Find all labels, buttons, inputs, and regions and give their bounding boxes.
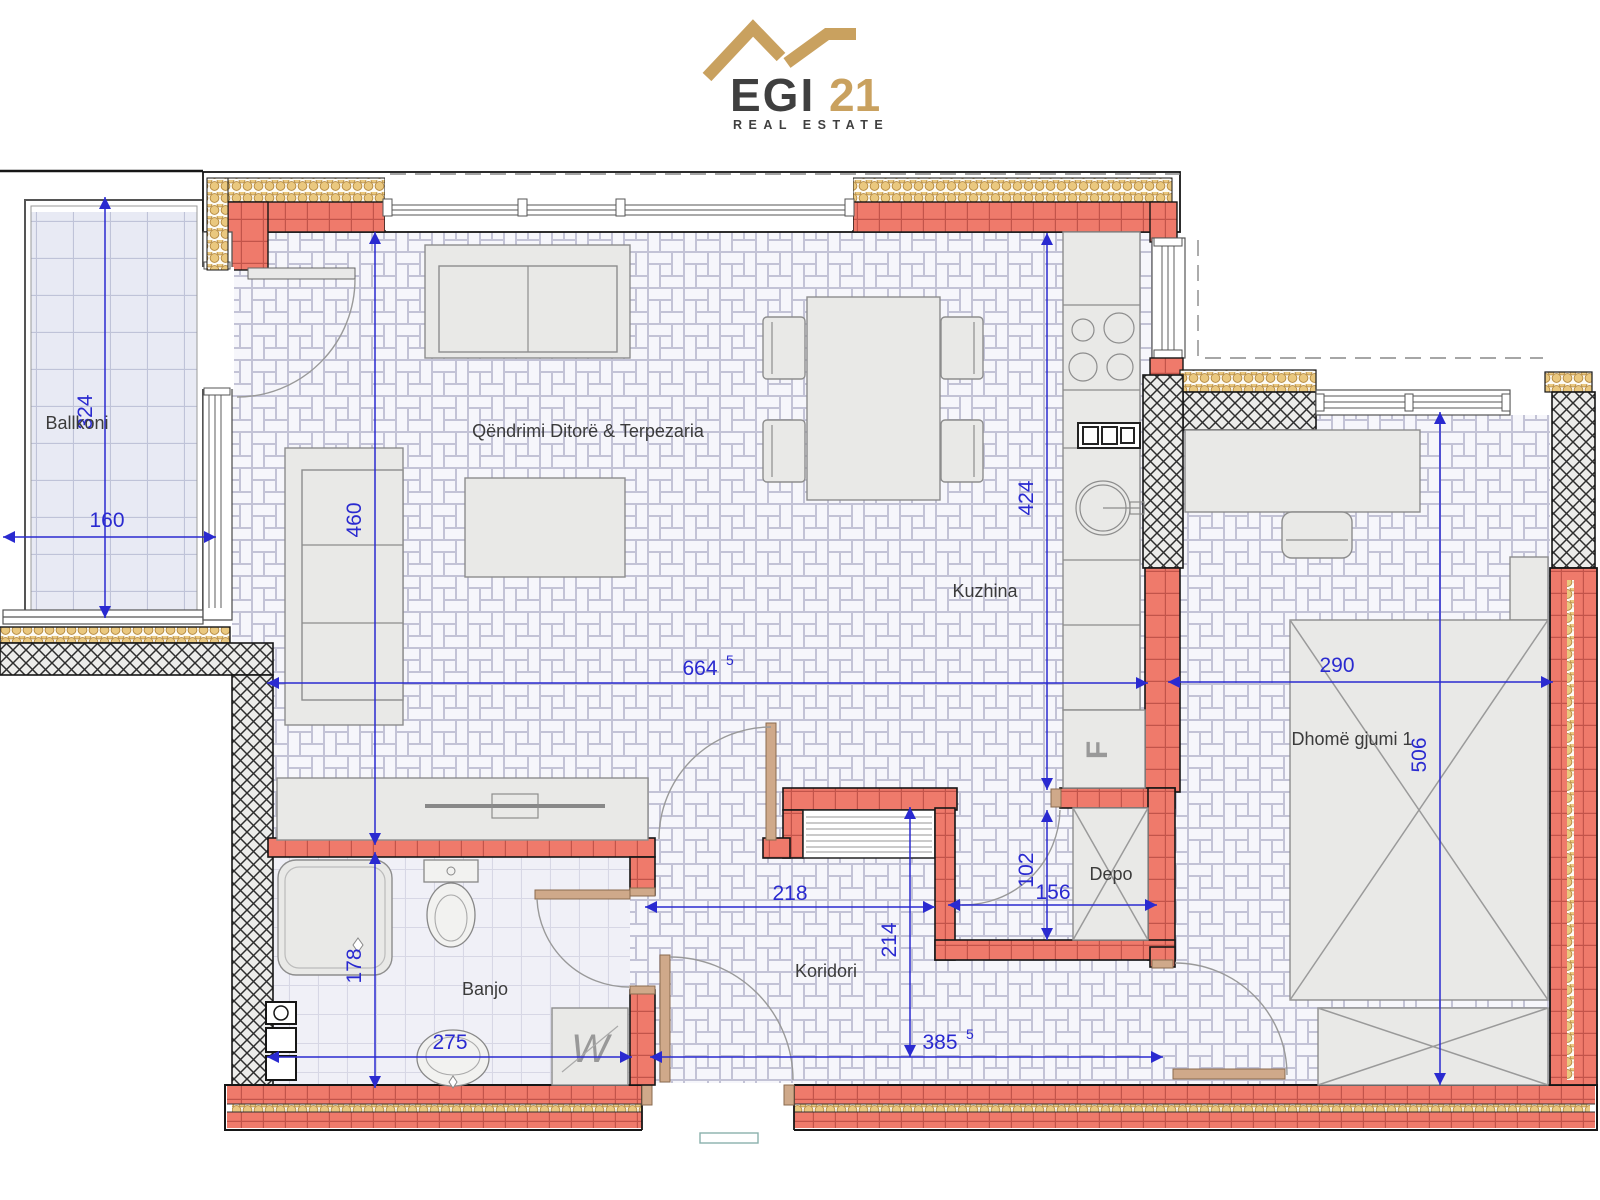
entrance-step	[700, 1133, 758, 1143]
label-balcony: Ballkoni	[45, 413, 108, 433]
living-left-wall	[201, 178, 234, 620]
label-bedroom: Dhomë gjumi 1	[1291, 729, 1412, 749]
bed	[1290, 620, 1548, 1000]
label-kitchen: Kuzhina	[952, 581, 1018, 601]
entrance-door-leaf	[660, 955, 670, 1082]
toilet	[424, 860, 478, 947]
floor-plan-canvas: EGI 21 REAL ESTATE	[0, 0, 1600, 1200]
logo-tagline: REAL ESTATE	[733, 118, 889, 132]
washing-machine: W	[552, 1008, 628, 1085]
slab-outline-dashed	[1198, 240, 1543, 358]
floor-plan-page: EGI 21 REAL ESTATE	[0, 0, 1600, 1200]
sofa-top	[425, 245, 630, 358]
dim-corridor-length-sup: 5	[966, 1026, 974, 1042]
logo-name: EGI	[730, 69, 815, 121]
utility-boxes	[266, 1002, 296, 1080]
fridge-label: F	[1081, 741, 1114, 759]
washing-machine-label: W	[571, 1027, 612, 1071]
dim-bath-width: 275	[432, 1031, 467, 1054]
dim-bath-depth: 178	[343, 948, 366, 983]
dim-balcony-width: 160	[89, 509, 124, 532]
desk-chair	[1282, 512, 1352, 558]
wardrobe	[1318, 1008, 1548, 1085]
kitchen-counter: F	[1063, 232, 1145, 788]
dim-kitchen-depth: 424	[1015, 480, 1038, 515]
logo-number: 21	[829, 69, 880, 121]
balcony-floor	[31, 212, 197, 612]
coffee-table	[465, 478, 625, 577]
label-bathroom: Banjo	[462, 979, 508, 999]
label-corridor: Koridori	[795, 961, 857, 981]
balcony-door-leaf	[248, 268, 355, 279]
dim-corridor-length: 385	[922, 1031, 957, 1054]
label-living: Qëndrimi Ditorë & Terpezaria	[472, 421, 705, 441]
nightstand	[1510, 557, 1548, 620]
wall-insulation-band	[0, 627, 230, 643]
control-panel	[1078, 423, 1140, 448]
bedroom-window	[1316, 390, 1510, 415]
logo: EGI 21 REAL ESTATE	[707, 28, 889, 132]
tv-cabinet	[277, 778, 648, 840]
dim-corridor-depth: 214	[878, 922, 901, 957]
living-corridor-door-leaf	[766, 723, 776, 840]
dim-living-height: 460	[343, 502, 366, 537]
kitchen-window	[1152, 238, 1185, 358]
dim-corridor-width: 218	[772, 882, 807, 905]
bedroom-right-wall	[1545, 372, 1597, 1085]
bedroom-door-leaf	[1173, 1069, 1285, 1079]
dim-storage-width: 156	[1035, 881, 1070, 904]
dim-living-length: 664	[682, 657, 717, 680]
dim-living-length-sup: 5	[726, 652, 734, 668]
label-storage: Depo	[1089, 864, 1132, 884]
desk	[1185, 430, 1420, 512]
bathroom-door-leaf	[535, 890, 630, 899]
logo-roof-right-icon	[787, 34, 856, 63]
dim-bedroom-width: 290	[1319, 654, 1354, 677]
dining-table	[807, 297, 940, 500]
wall-hatched-band	[0, 643, 273, 675]
bottom-wall	[225, 1083, 1597, 1143]
shaft	[803, 810, 935, 858]
